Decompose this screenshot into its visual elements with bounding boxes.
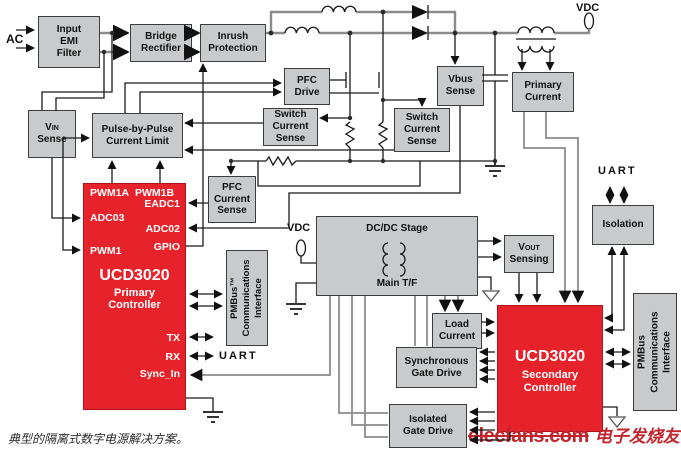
block-primary-current: Primary Current xyxy=(512,72,574,112)
secondary-controller-title: UCD3020 xyxy=(498,348,602,367)
block-switch-current-sense-left: Switch Current Sense xyxy=(263,108,318,146)
vin-line2: Sense xyxy=(37,134,66,145)
block-pfc-current-sense: PFC Current Sense xyxy=(208,176,256,223)
dcdc-stage-title: DC/DC Stage xyxy=(317,223,477,235)
chassis-ground-icon xyxy=(483,291,499,301)
vin-v: V xyxy=(45,122,52,134)
pin-pwm1: PWM1 xyxy=(90,245,122,257)
block-synchronous-gate-drive: Synchronous Gate Drive xyxy=(396,347,477,388)
block-isolation: Isolation xyxy=(592,205,654,245)
block-label: Inrush Protection xyxy=(208,31,257,55)
chip-ucd3020-secondary: UCD3020 Secondary Controller xyxy=(497,305,603,432)
block-isolated-gate-drive: Isolated Gate Drive xyxy=(389,404,467,448)
pfc-cs-gpio-wires xyxy=(186,64,208,246)
primary-controller-line2: Controller xyxy=(84,299,185,312)
block-pmbus-interface-secondary: PMBus Communications Interface xyxy=(633,293,677,411)
boost-inductor-icon xyxy=(285,6,356,33)
block-load-current: Load Current xyxy=(432,313,482,349)
block-label: PMBus™ Communications Interface xyxy=(229,250,265,346)
mosfet-icon xyxy=(330,12,383,122)
ground-icon xyxy=(485,161,505,176)
secondary-sense-wires xyxy=(482,112,578,333)
block-label: Load Current xyxy=(439,319,475,343)
block-label: PMBus Communications Interface xyxy=(636,293,674,411)
block-label: Primary Current xyxy=(524,80,561,104)
vout-sub: OUT xyxy=(525,245,540,253)
current-transformer-icon xyxy=(516,27,556,70)
block-pmbus-interface-primary: PMBus™ Communications Interface xyxy=(226,250,268,346)
connector-icon xyxy=(585,13,594,29)
shunt-resistor-icon xyxy=(266,157,296,165)
main-tf-label: Main T/F xyxy=(317,278,477,290)
sense-resistor-icon xyxy=(379,122,387,148)
pin-rx: RX xyxy=(165,351,180,363)
block-diagram-canvas: Input EMI Filter Bridge Rectifier Inrush… xyxy=(0,0,681,464)
diode-icon xyxy=(412,5,428,40)
sense-resistor-icon xyxy=(346,122,354,148)
pin-sync-in: Sync_In xyxy=(140,368,180,380)
capacitor-icon xyxy=(482,33,508,161)
ac-input-label: AC xyxy=(6,32,23,46)
pin-eadc1: EADC1 xyxy=(144,198,180,210)
watermark-site-text: elecfans.com xyxy=(468,425,589,447)
uart-primary-label: UART xyxy=(219,350,258,362)
primary-controller-title: UCD3020 xyxy=(84,267,185,286)
block-input-emi-filter: Input EMI Filter xyxy=(38,16,100,68)
vout-v: V xyxy=(518,242,525,254)
return-rail xyxy=(231,157,495,186)
block-pfc-drive: PFC Drive xyxy=(284,68,330,105)
block-vout-sensing: VOUTSensing xyxy=(504,235,554,273)
block-switch-current-sense-right: Switch Current Sense xyxy=(394,108,450,152)
ground-icon xyxy=(286,304,306,314)
chip-ucd3020-primary: PWM1A PWM1B EADC1 ADC03 ADC02 PWM1 GPIO … xyxy=(83,183,186,410)
vdc-top-label: VDC xyxy=(576,2,599,14)
block-label: Switch Current Sense xyxy=(404,112,440,147)
block-label: Bridge Rectifier xyxy=(141,31,181,55)
vout-line2: Sensing xyxy=(510,254,549,265)
block-label: PFC Drive xyxy=(294,75,319,99)
block-pulse-by-pulse-current-limit: Pulse-by-Pulse Current Limit xyxy=(92,113,183,158)
block-label: PFC Current Sense xyxy=(214,182,250,217)
pin-gpio: GPIO xyxy=(154,241,180,253)
pin-adc03: ADC03 xyxy=(90,212,124,224)
vin-sub: IN xyxy=(52,125,59,133)
block-label: Isolation xyxy=(602,219,643,231)
block-label: VINSense xyxy=(37,122,66,146)
block-inrush-protection: Inrush Protection xyxy=(200,24,266,62)
block-dcdc-stage: DC/DC Stage Main T/F xyxy=(316,216,478,296)
pin-tx: TX xyxy=(167,332,180,344)
block-label: VOUTSensing xyxy=(510,242,549,266)
watermark: elecfans.com电子发烧友 xyxy=(468,422,680,448)
watermark-cn-text: 电子发烧友 xyxy=(595,427,680,446)
secondary-controller-line1: Secondary xyxy=(498,369,602,382)
block-label: Isolated Gate Drive xyxy=(403,414,453,438)
block-label: Pulse-by-Pulse Current Limit xyxy=(102,124,174,148)
pin-pwm1a: PWM1A xyxy=(90,187,129,199)
block-vin-sense: VINSense xyxy=(28,110,76,158)
block-label: Switch Current Sense xyxy=(272,109,308,144)
figure-caption: 典型的隔离式数字电源解决方案。 xyxy=(8,430,188,447)
secondary-controller-line2: Controller xyxy=(498,382,602,395)
block-vbus-sense: Vbus Sense xyxy=(437,66,484,106)
block-label: Vbus Sense xyxy=(446,74,475,98)
connector-icon xyxy=(297,240,306,256)
block-label: Input EMI Filter xyxy=(57,24,81,59)
vdc-mid-label: VDC xyxy=(287,222,310,234)
pin-adc02: ADC02 xyxy=(146,223,180,235)
block-label: Synchronous Gate Drive xyxy=(405,356,469,380)
ground-icon xyxy=(203,412,223,422)
dcdc-input-wires xyxy=(296,256,316,303)
uart-isolation-label: UART xyxy=(598,165,637,177)
block-bridge-rectifier: Bridge Rectifier xyxy=(130,24,192,62)
